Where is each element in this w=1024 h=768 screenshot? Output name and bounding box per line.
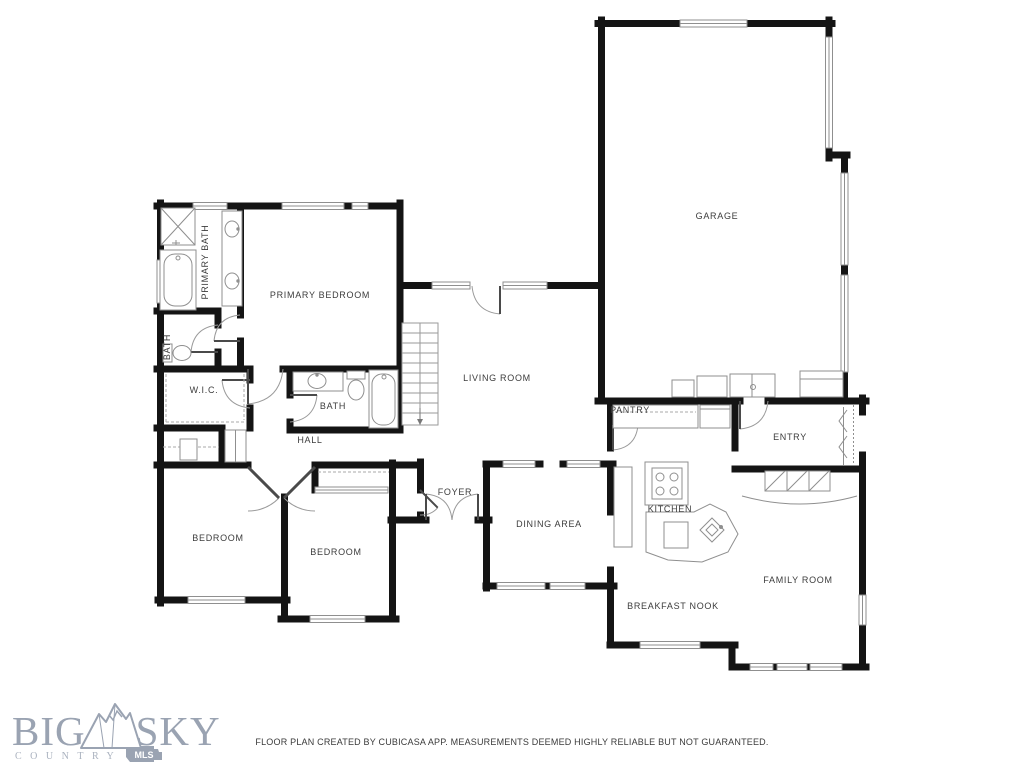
room-label-bath-hall: BATH	[320, 401, 346, 411]
window	[352, 203, 368, 210]
stove	[645, 462, 688, 505]
garage-utilities	[672, 371, 843, 397]
kitchen-counter-west	[614, 467, 632, 547]
window	[777, 664, 807, 671]
window	[503, 282, 547, 289]
room-label-living-room: LIVING ROOM	[463, 373, 531, 383]
disclaimer-text: FLOOR PLAN CREATED BY CUBICASA APP. MEAS…	[0, 737, 1024, 747]
windows-group	[157, 20, 866, 671]
window	[310, 616, 365, 623]
bedroom-closet	[315, 472, 389, 493]
window	[841, 173, 848, 265]
fixtures-group	[160, 208, 857, 562]
window	[750, 664, 773, 671]
bathtub-primary	[160, 250, 196, 310]
bathtub-hall-bath	[369, 370, 398, 428]
window	[826, 37, 833, 148]
laundry-closet	[163, 439, 219, 460]
front-door	[839, 405, 854, 465]
window	[680, 20, 747, 27]
window	[640, 642, 700, 649]
room-label-wic: W.I.C.	[190, 385, 219, 395]
wic-shelving	[166, 374, 246, 424]
room-label-dining-area: DINING AREA	[516, 519, 582, 529]
fireplace	[742, 471, 857, 504]
big-sky-mls-logo: BIG SKY COUNTRY MLS	[12, 696, 222, 768]
shower	[161, 208, 195, 245]
window	[188, 597, 245, 604]
doors-group	[191, 286, 854, 520]
window	[859, 595, 866, 625]
room-label-breakfast-nook: BREAKFAST NOOK	[627, 601, 719, 611]
floor-plan-svg: GARAGEPRIMARY BEDROOMPRIMARY BATHBATHW.I…	[0, 0, 1024, 768]
room-label-family-room: FAMILY ROOM	[763, 575, 832, 585]
hearth-curve	[742, 496, 857, 504]
toilet-hall-bath	[347, 371, 365, 400]
room-label-foyer: FOYER	[438, 487, 473, 497]
room-label-pantry: PANTRY	[610, 405, 650, 415]
window	[567, 461, 600, 468]
walls-group	[157, 20, 866, 667]
window	[550, 583, 585, 590]
room-label-bedroom-left: BEDROOM	[192, 533, 243, 543]
floor-plan-page: GARAGEPRIMARY BEDROOMPRIMARY BATHBATHW.I…	[0, 0, 1024, 768]
room-label-primary-bath: PRIMARY BATH	[200, 225, 210, 300]
vanity-primary	[222, 211, 242, 306]
window	[810, 664, 842, 671]
room-label-bedroom-mid: BEDROOM	[310, 547, 361, 557]
room-label-kitchen: KITCHEN	[648, 504, 692, 514]
room-label-bath-toilet: BATH	[162, 334, 172, 360]
window	[193, 203, 227, 210]
window	[497, 583, 545, 590]
vanity-hall-bath	[293, 372, 343, 391]
room-label-garage: GARAGE	[696, 211, 739, 221]
window	[432, 282, 470, 289]
window	[282, 203, 344, 210]
refrigerator	[700, 405, 730, 428]
window	[503, 461, 535, 468]
room-label-entry: ENTRY	[773, 432, 807, 442]
window	[841, 275, 848, 372]
room-label-primary-bedroom: PRIMARY BEDROOM	[270, 290, 370, 300]
linen-closet	[225, 430, 246, 462]
room-label-hall: HALL	[297, 435, 322, 445]
staircase	[402, 323, 438, 425]
